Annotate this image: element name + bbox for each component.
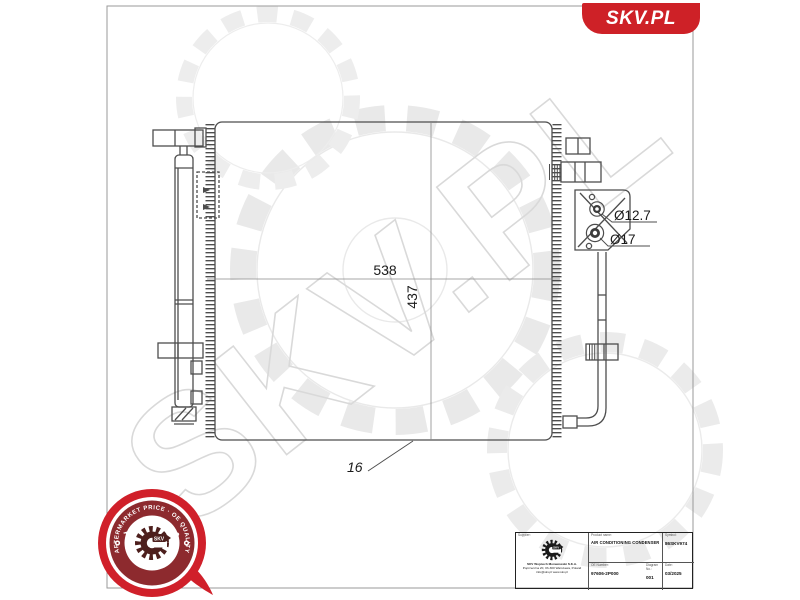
dim-depth: 16 [347,459,363,475]
dim-width: 538 [373,262,397,278]
brand-badge-text: SKV.PL [606,8,676,30]
supplier-cell: Supplier: SKV Wojciech Morawowski S.K.A.… [516,533,589,590]
title-block: Supplier: SKV Wojciech Morawowski S.K.A.… [515,532,693,589]
date-value: 03/2025 [665,571,692,577]
date-cell: Date: 03/2025 [663,563,694,590]
dim-port-small: Ø12.7 [614,208,651,223]
condenser-core [215,122,552,440]
diagram-no-cell: Diagram No.: 001 [644,563,663,590]
symbol-cell: Symbol: 86SKV974 [663,533,694,563]
leader-depth [368,441,413,471]
brand-badge: SKV.PL [582,3,700,34]
dim-port-large: Ø17 [610,232,636,247]
pipe-end-cap [563,416,577,428]
center-lines [207,122,560,440]
hidden-bracket [197,172,219,218]
oe-number-label: OE Number: [591,564,642,568]
catalog-sheet: SKV SKV.PL [0,0,800,600]
symbol-label: Symbol: [665,534,692,538]
symbol-value: 86SKV974 [665,541,692,547]
diagram-no-label: Diagram No.: [646,564,660,572]
product-name-label: Product name: [591,534,660,538]
oe-number-value: 97606-2P000 [591,571,642,577]
company-contact: info@skv.pl www.skv.pl [523,571,582,575]
diagram-no-value: 001 [646,575,660,581]
quality-stamp: AFTERMARKET PRICE · OE QUALITY AUTO PART… [96,486,222,600]
date-label: Date: [665,564,692,568]
condenser-outline [153,122,630,440]
oe-number-cell: OE Number: 97606-2P000 [589,563,644,590]
supplier-logo-gear-icon [540,538,564,562]
product-name-cell: Product name: AIR CONDITIONING CONDENSER [589,533,663,563]
product-name-value: AIR CONDITIONING CONDENSER [591,541,660,546]
supplier-label: Supplier: [518,534,531,538]
dim-height: 437 [404,285,420,309]
